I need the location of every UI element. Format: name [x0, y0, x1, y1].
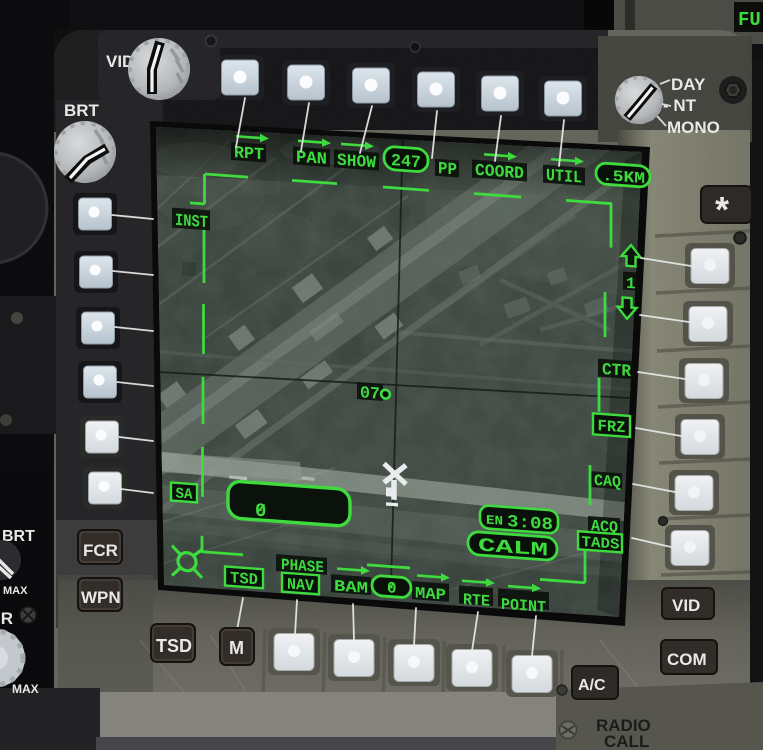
- svg-text:MONO: MONO: [667, 118, 720, 137]
- svg-text:CTR: CTR: [602, 361, 632, 382]
- svg-text:FRZ: FRZ: [598, 417, 626, 437]
- svg-text:RPT: RPT: [234, 144, 264, 165]
- svg-text:1: 1: [626, 275, 636, 294]
- svg-text:COORD: COORD: [475, 162, 524, 185]
- svg-text:07: 07: [360, 384, 380, 404]
- svg-text:EN: EN: [486, 513, 503, 529]
- svg-text:PP: PP: [438, 160, 457, 180]
- svg-text:COM: COM: [667, 650, 707, 669]
- svg-text:BRT: BRT: [64, 101, 100, 120]
- svg-text:POINT: POINT: [501, 596, 546, 617]
- svg-text:MAX: MAX: [12, 682, 39, 696]
- svg-text:DAY: DAY: [671, 75, 706, 94]
- svg-text:3:08: 3:08: [507, 513, 553, 535]
- svg-text:VID: VID: [672, 596, 700, 615]
- svg-text:UTIL: UTIL: [546, 167, 582, 189]
- svg-text:PAN: PAN: [296, 149, 327, 170]
- svg-text:WPN: WPN: [81, 588, 121, 607]
- svg-text:BAM: BAM: [334, 577, 368, 597]
- svg-text:MAX: MAX: [3, 585, 28, 597]
- svg-text:TSD: TSD: [156, 636, 192, 656]
- svg-text:NAV: NAV: [287, 575, 314, 595]
- svg-text:CAQ: CAQ: [594, 472, 621, 492]
- svg-text:RTE: RTE: [463, 591, 490, 611]
- svg-text:MAP: MAP: [415, 584, 446, 604]
- svg-text:.5KM: .5KM: [602, 167, 645, 188]
- svg-text:INST: INST: [175, 212, 208, 233]
- svg-text:TADS: TADS: [582, 534, 620, 554]
- svg-text:247: 247: [391, 152, 421, 173]
- svg-text:FCR: FCR: [83, 541, 118, 560]
- svg-text:CALL: CALL: [604, 732, 649, 750]
- svg-text:FU: FU: [738, 9, 761, 31]
- svg-text:SA: SA: [176, 485, 193, 503]
- svg-text:TSD: TSD: [230, 569, 258, 589]
- svg-text:SHOW: SHOW: [337, 152, 377, 174]
- svg-text:0: 0: [255, 500, 266, 523]
- svg-text:M: M: [229, 638, 244, 658]
- svg-text:IR: IR: [0, 609, 13, 628]
- svg-text:*: *: [715, 189, 729, 230]
- svg-text:A/C: A/C: [578, 677, 606, 694]
